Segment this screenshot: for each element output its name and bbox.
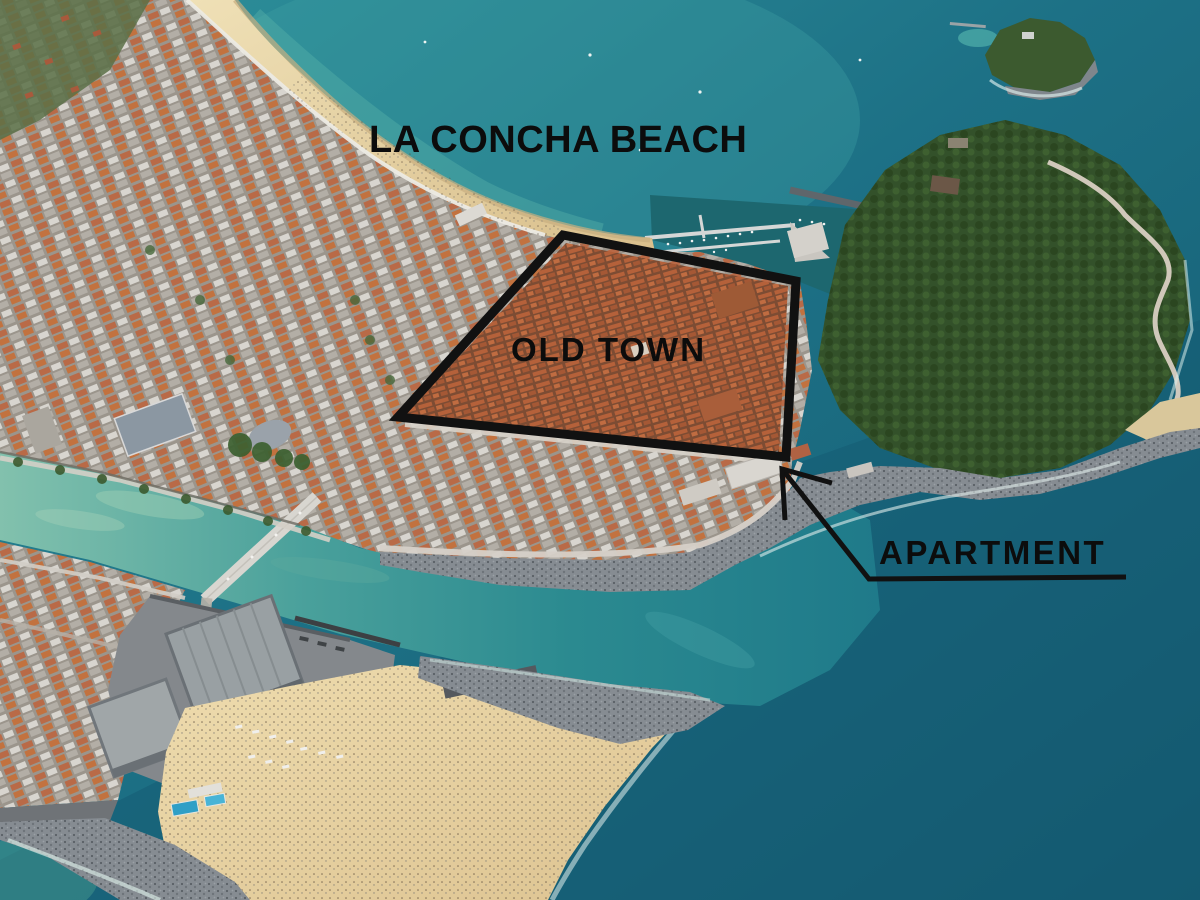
la-concha-beach-label: LA CONCHA BEACH — [369, 121, 747, 159]
old-town-label: OLD TOWN — [511, 333, 706, 366]
aerial-map: LA CONCHA BEACH OLD TOWN APARTMENT — [0, 0, 1200, 900]
apartment-label: APARTMENT — [879, 536, 1106, 569]
